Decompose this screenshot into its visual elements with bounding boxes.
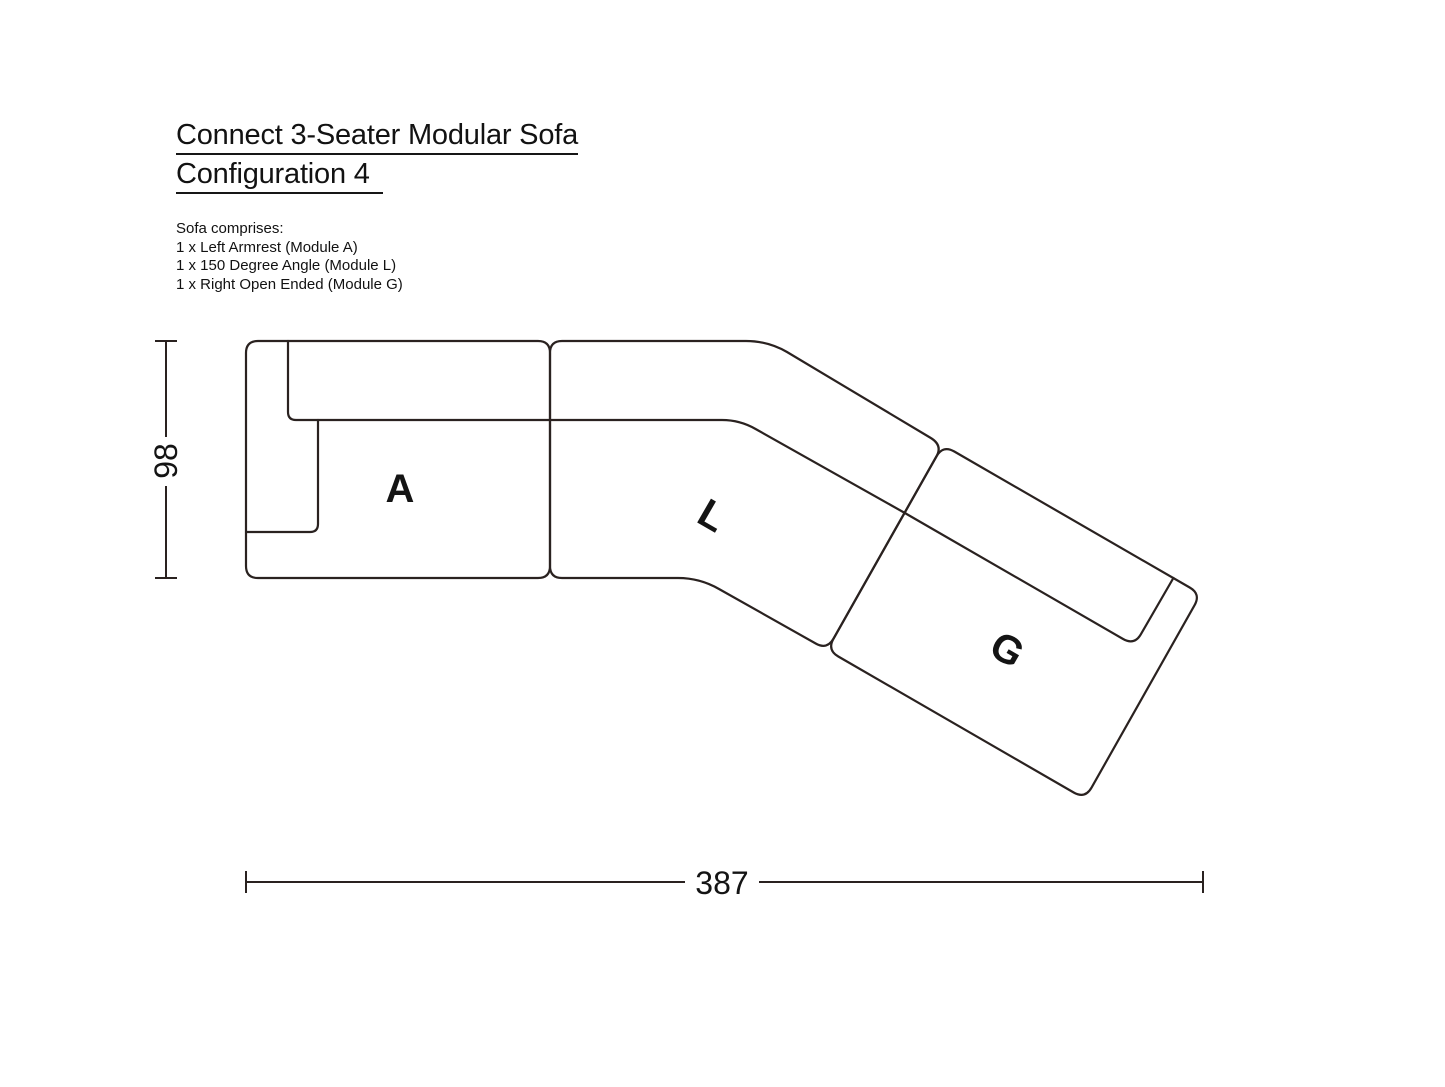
sofa-configuration-sheet: Connect 3-Seater Modular Sofa Configurat… — [0, 0, 1445, 1087]
module-a-armrest-line — [246, 420, 318, 532]
diagram-labels: A L G 98 387 — [148, 443, 1031, 901]
width-dimension-value: 387 — [695, 865, 748, 901]
module-a-outline — [246, 341, 550, 578]
module-g-backrest-line — [904, 513, 1173, 642]
module-l-label: L — [690, 491, 733, 541]
module-a-label: A — [386, 467, 415, 511]
dimension-lines — [155, 341, 1203, 893]
module-a-backrest-line — [288, 341, 550, 420]
sofa-drawing — [246, 341, 1197, 795]
sofa-top-view-diagram: A L G 98 387 — [0, 0, 1445, 1087]
module-g-outline — [831, 449, 1197, 795]
height-dimension-value: 98 — [148, 443, 184, 479]
module-l-outline — [550, 341, 939, 646]
module-g-label: G — [983, 623, 1032, 677]
